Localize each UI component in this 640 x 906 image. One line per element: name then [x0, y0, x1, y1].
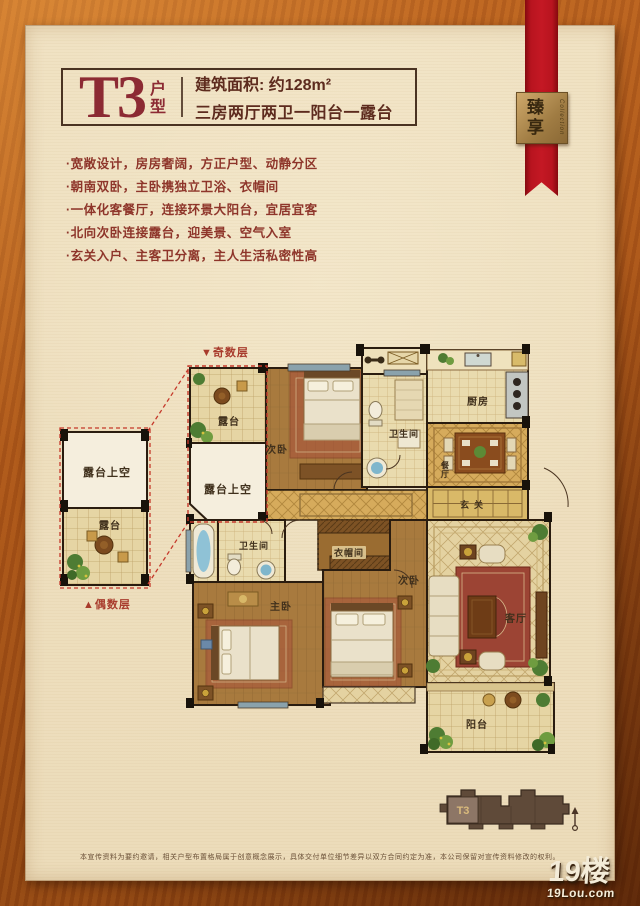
label-entry: 玄关 — [460, 498, 488, 511]
poster-root: { "header": { "unit_code": "T3", "unit_t… — [0, 0, 640, 906]
building-diagram: T3 — [435, 780, 585, 835]
corridor — [266, 490, 427, 520]
disclaimer-text: 本宣传资料为要约邀请，相关户型布置格局属于创意概念展示，具体交付单位细节差异以双… — [25, 852, 615, 862]
room-bath-master — [186, 520, 285, 582]
label-terrace: 露台 — [218, 413, 240, 428]
room-bedroom-north — [266, 364, 367, 490]
label-living: 客厅 — [505, 610, 527, 625]
logo-cn: 19楼 — [548, 858, 618, 886]
toilet-icon — [369, 402, 382, 427]
label-bath-guest: 卫生间 — [389, 427, 419, 440]
room-master — [193, 582, 330, 708]
label-cloakroom: 衣帽间 — [332, 546, 366, 559]
feature-item: ·一体化客餐厅，连接环景大阳台，宜居宜客 — [66, 199, 318, 222]
label-bedroom-north: 次卧 — [266, 441, 288, 456]
building-unit-label: T3 — [457, 805, 470, 817]
compass-icon — [572, 807, 579, 830]
label-detail-void: 露台上空 — [83, 464, 131, 480]
bed-icon — [211, 626, 279, 680]
feature-item: ·北向次卧连接露台，迎美景、空气入室 — [66, 222, 318, 245]
floor-plan-svg — [55, 340, 575, 760]
logo-url: 19Lou.com — [547, 886, 616, 900]
floor-plan: ▼奇数层 ▲偶数层 露台 露台上空 次卧 卫生间 厨房 餐厅 玄关 卫生间 衣帽… — [55, 340, 575, 760]
label-balcony: 阳台 — [466, 716, 488, 731]
room-balcony — [427, 683, 555, 752]
label-bedroom-mid: 次卧 — [398, 572, 420, 587]
armchair-icon — [479, 652, 505, 670]
feature-list: ·宽敞设计，房房奢阔，方正户型、动静分区 ·朝南双卧，主卧携独立卫浴、衣帽间 ·… — [66, 153, 318, 268]
bed-icon — [304, 370, 360, 440]
detail-callout-lines — [148, 368, 189, 584]
even-floor-marker: ▲偶数层 — [83, 596, 131, 612]
header-specs: 建筑面积: 约128m² 三房两厅两卫一阳台一露台 — [195, 71, 393, 123]
layout-line: 三房两厅两卫一阳台一露台 — [195, 99, 393, 123]
header-divider — [181, 77, 183, 117]
feature-item: ·朝南双卧，主卧携独立卫浴、衣帽间 — [66, 176, 318, 199]
room-terrace — [190, 368, 266, 443]
odd-floor-marker: ▼奇数层 — [201, 344, 249, 360]
sofa-icon — [429, 576, 459, 656]
header-box: T3 户型 建筑面积: 约128m² 三房两厅两卫一阳台一露台 — [61, 68, 417, 126]
tv-cabinet-icon — [536, 592, 547, 658]
label-terrace-void: 露台上空 — [204, 481, 252, 497]
label-dining: 餐厅 — [441, 462, 451, 480]
building-svg: T3 — [435, 780, 585, 835]
site-watermark: 19楼 19Lou.com — [547, 858, 618, 900]
room-cloakroom — [318, 520, 392, 570]
detail-terrace-box — [60, 428, 150, 588]
badge-title: 臻享 — [527, 98, 547, 139]
stove-icon — [506, 372, 528, 418]
entry-door-arc — [544, 468, 568, 507]
label-detail-terrace: 露台 — [99, 517, 121, 532]
label-kitchen: 厨房 — [467, 393, 489, 408]
feature-item: ·宽敞设计，房房奢阔，方正户型、动静分区 — [66, 153, 318, 176]
room-kitchen — [427, 350, 528, 423]
label-bath-master: 卫生间 — [239, 539, 269, 552]
unit-type-label: 户型 — [150, 81, 167, 118]
badge-subtitle: Collection — [558, 99, 564, 135]
bathtub-icon — [193, 524, 214, 578]
bay-window — [323, 687, 415, 703]
room-living — [426, 520, 550, 683]
collection-badge: 臻享 Collection — [516, 92, 568, 144]
unit-code: T3 — [79, 72, 145, 122]
armchair-icon — [479, 545, 505, 563]
label-master: 主卧 — [270, 598, 292, 613]
unit-type-text: 户型 — [150, 81, 167, 118]
feature-item: ·玄关入户、主客卫分离，主人生活私密性高 — [66, 245, 318, 268]
bed-icon — [331, 603, 393, 677]
area-line: 建筑面积: 约128m² — [195, 71, 393, 95]
